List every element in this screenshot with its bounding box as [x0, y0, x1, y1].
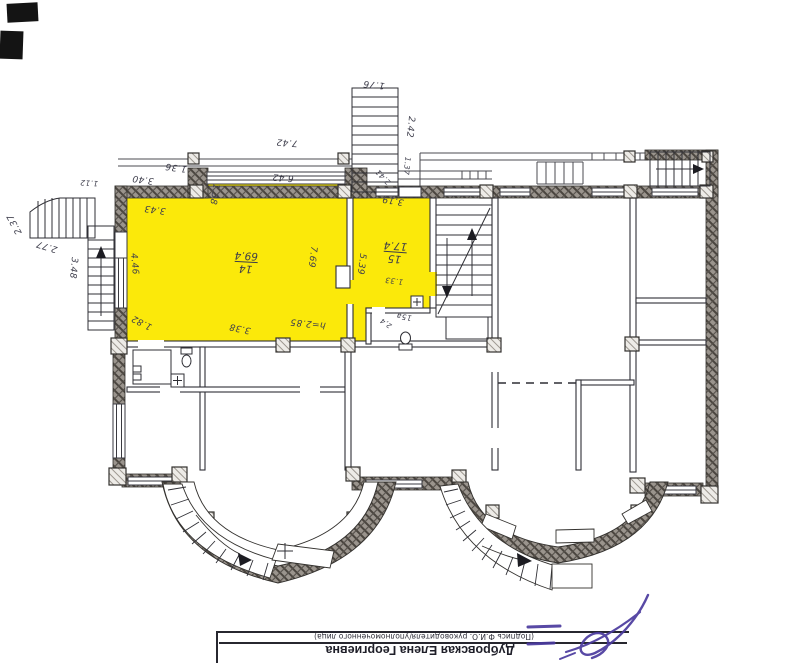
appliance — [133, 350, 171, 384]
scanned-floor-plan-page: 2.37 2.77 3.48 1.12 3.40 1.36 7.42 1.38 … — [0, 0, 800, 663]
signatory-name: Дубровская Елена Георгиевна — [235, 643, 605, 657]
signature-caption: (Подпись Ф.И.О. руководителя/уполномочен… — [222, 632, 626, 641]
room-label-14: 14 69.4 — [234, 249, 259, 275]
toilet-icon — [399, 332, 412, 350]
signature-box-left-border — [216, 631, 218, 663]
dim-label: 4.46 — [128, 253, 140, 275]
dim-label: 1.12 — [80, 178, 99, 188]
room-number: 15 — [382, 251, 406, 266]
dim-label: 7.42 — [276, 136, 298, 147]
toilet-icon — [181, 348, 192, 367]
curved-bay-right — [440, 482, 668, 590]
room-label-15a: 15а — [396, 311, 412, 322]
sink-cross-icon — [171, 374, 184, 387]
room-label-15: 15 17.4 — [382, 239, 407, 266]
floor-plan-drawing — [0, 0, 800, 663]
sink-cross-icon — [411, 296, 423, 308]
room-area: 69.4 — [234, 249, 258, 262]
dim-label: 3.48 — [67, 257, 79, 279]
curved-bay-left — [162, 482, 396, 583]
room-number: 14 — [234, 261, 258, 275]
dim-label: 1.76 — [363, 78, 386, 90]
room-area: 17.4 — [383, 239, 407, 253]
dim-label: 1.37 — [402, 156, 413, 175]
dim-label: 6.42 — [272, 171, 294, 182]
